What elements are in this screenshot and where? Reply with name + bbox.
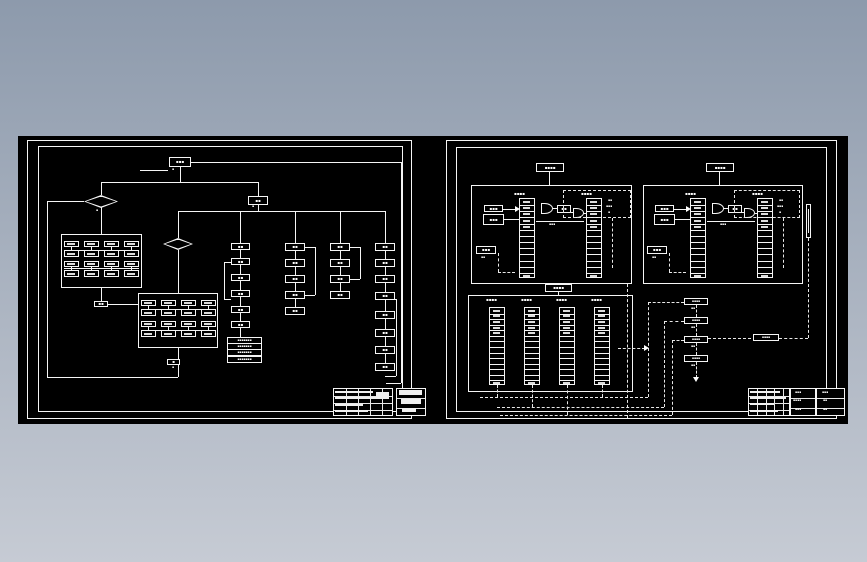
ladder-cell-text bbox=[563, 315, 571, 317]
el-box: ▪▪ bbox=[375, 275, 395, 283]
el-text: ▪▪ bbox=[823, 399, 827, 402]
ladder-cell-text bbox=[563, 382, 571, 384]
ladder-cell-line bbox=[560, 364, 574, 365]
module-pair-part bbox=[164, 323, 172, 325]
el-text: ▪▪ bbox=[779, 199, 783, 202]
ladder-cell-line bbox=[758, 230, 772, 231]
el-pair bbox=[181, 321, 196, 337]
r-register-ladder bbox=[690, 198, 706, 278]
el-text: ▪▪▪▪ bbox=[486, 298, 497, 302]
el-pair bbox=[104, 261, 119, 277]
ladder-cell-text bbox=[493, 382, 501, 384]
el-box: ▪▪▪▪ bbox=[684, 298, 708, 305]
ladder-cell-line bbox=[490, 319, 504, 320]
el-dh bbox=[500, 415, 672, 416]
ladder-cell-line bbox=[490, 364, 504, 365]
el-box: ▪▪ bbox=[285, 259, 305, 267]
ladder-cell-text bbox=[598, 327, 606, 329]
el-hl bbox=[553, 208, 557, 209]
el-pair bbox=[124, 261, 139, 277]
ladder-cell-line bbox=[525, 330, 539, 331]
l-step-box: ▪▪ bbox=[248, 196, 268, 205]
el-box: ▪▪ bbox=[231, 306, 250, 313]
ladder-cell-line bbox=[691, 224, 705, 225]
ladder-cell-line bbox=[595, 380, 609, 381]
module-pair-part bbox=[67, 253, 75, 255]
l-decision-diamond-2 bbox=[163, 238, 193, 250]
ladder-cell-line bbox=[595, 341, 609, 342]
el-text: ▪ bbox=[779, 211, 781, 214]
ladder-cell-text bbox=[493, 310, 501, 312]
el-dv bbox=[696, 362, 697, 378]
ladder-cell-line bbox=[587, 267, 601, 268]
r-register-ladder bbox=[519, 198, 535, 278]
el-text: ▪▪▪▪ bbox=[556, 298, 567, 302]
el-blob bbox=[335, 397, 378, 399]
ladder-cell-line bbox=[520, 273, 534, 274]
module-pair-part bbox=[204, 302, 212, 304]
el-box: ▪▪▪▪ bbox=[753, 334, 779, 341]
el-blob bbox=[335, 391, 373, 393]
ladder-cell-line bbox=[490, 358, 504, 359]
el-box: ▪▪▪ bbox=[483, 214, 504, 225]
ladder-cell-text bbox=[563, 310, 571, 312]
el-dv bbox=[627, 284, 628, 418]
ladder-cell-line bbox=[520, 242, 534, 243]
ladder-cell-line bbox=[560, 330, 574, 331]
el-text: ▪▪▪ bbox=[720, 223, 726, 226]
ladder-cell-line bbox=[525, 347, 539, 348]
ladder-cell-line bbox=[560, 369, 574, 370]
el-dh bbox=[672, 340, 684, 341]
el-hl bbox=[385, 376, 396, 377]
el-dh bbox=[708, 338, 751, 339]
ladder-cell-line bbox=[587, 273, 601, 274]
module-pair-part bbox=[67, 243, 75, 245]
ladder-cell-text bbox=[761, 220, 769, 222]
ladder-cell-line bbox=[587, 261, 601, 262]
el-pair bbox=[124, 241, 139, 257]
module-pair-part bbox=[107, 263, 115, 265]
module-pair-part bbox=[107, 273, 115, 275]
el-dv bbox=[664, 321, 665, 407]
ladder-cell-text bbox=[590, 220, 598, 222]
r-titleblock-right bbox=[816, 388, 845, 416]
el-text: ▪▪ bbox=[691, 364, 695, 367]
titleblock-grid-line bbox=[817, 398, 844, 399]
ladder-cell-line bbox=[587, 242, 601, 243]
l-start-box: ▪▪▪ bbox=[169, 157, 191, 167]
el-box: ▪▪ bbox=[330, 259, 350, 267]
r-titleblock-mid bbox=[790, 388, 816, 416]
el-vl bbox=[178, 365, 179, 377]
el-blob bbox=[402, 408, 416, 412]
ladder-cell-line bbox=[525, 380, 539, 381]
el-blob bbox=[750, 391, 780, 393]
module-pair-part bbox=[87, 263, 95, 265]
el-pair bbox=[161, 300, 176, 316]
ladder-cell-text bbox=[598, 321, 606, 323]
ladder-cell-line bbox=[595, 319, 609, 320]
ladder-cell-text bbox=[493, 332, 501, 334]
el-blob bbox=[750, 410, 778, 412]
el-dv bbox=[696, 343, 697, 355]
ladder-cell-line bbox=[758, 224, 772, 225]
ladder-cell-text bbox=[523, 226, 531, 228]
el-hl bbox=[350, 247, 360, 248]
el-dv bbox=[808, 238, 809, 338]
ladder-cell-line bbox=[520, 248, 534, 249]
el-arr bbox=[644, 345, 649, 351]
el-box: ▪▪▪▪ bbox=[684, 336, 708, 343]
module-pair-part bbox=[87, 253, 95, 255]
el-text: ▪▪▪▪ bbox=[514, 192, 525, 196]
el-hl bbox=[178, 211, 385, 212]
module-pair-part bbox=[127, 243, 135, 245]
el-text: ▪▪▪ bbox=[549, 223, 555, 226]
el-text: ▪▪▪▪ bbox=[685, 192, 696, 196]
ladder-cell-line bbox=[520, 211, 534, 212]
el-dv bbox=[497, 385, 498, 397]
ladder-cell-text bbox=[563, 332, 571, 334]
el-text: ▪▪▪ bbox=[777, 205, 783, 208]
module-pair-part bbox=[164, 333, 172, 335]
ladder-cell-text bbox=[598, 332, 606, 334]
ladder-cell-line bbox=[587, 236, 601, 237]
ladder-cell-line bbox=[560, 325, 574, 326]
module-pair-part bbox=[107, 243, 115, 245]
ladder-cell-text bbox=[523, 275, 531, 277]
el-hl bbox=[108, 304, 138, 305]
l-notes-row: ▪▪▪▪▪▪▪ bbox=[227, 356, 262, 363]
ladder-cell-text bbox=[598, 382, 606, 384]
el-pair bbox=[84, 261, 99, 277]
ladder-cell-line bbox=[490, 353, 504, 354]
el-box: ▪▪ bbox=[285, 291, 305, 299]
module-pair-part bbox=[184, 333, 192, 335]
el-hl bbox=[386, 383, 401, 384]
module-pair-part bbox=[204, 312, 212, 314]
el-dv bbox=[783, 218, 784, 268]
el-box: ▪▪ bbox=[231, 243, 250, 250]
ladder-cell-line bbox=[525, 336, 539, 337]
ladder-cell-line bbox=[691, 261, 705, 262]
el-blob bbox=[750, 397, 786, 399]
ladder-cell-line bbox=[691, 248, 705, 249]
el-vl bbox=[101, 207, 102, 234]
diamond-fill bbox=[86, 197, 116, 207]
ladder-cell-line bbox=[758, 273, 772, 274]
el-box: ▪▪ bbox=[375, 311, 395, 319]
el-text: ▪▪ bbox=[608, 199, 612, 202]
ladder-cell-text bbox=[694, 213, 702, 215]
el-dv bbox=[498, 253, 499, 272]
ladder-cell-line bbox=[691, 205, 705, 206]
el-hl bbox=[674, 209, 686, 210]
el-dv bbox=[669, 253, 670, 272]
el-vl bbox=[315, 247, 316, 295]
module-pair-part bbox=[184, 312, 192, 314]
ladder-cell-text bbox=[528, 327, 536, 329]
ladder-cell-line bbox=[525, 319, 539, 320]
ladder-cell-line bbox=[595, 347, 609, 348]
el-arr bbox=[515, 206, 520, 212]
el-dh bbox=[618, 348, 645, 349]
ladder-cell-line bbox=[525, 364, 539, 365]
ladder-cell-line bbox=[758, 261, 772, 262]
ladder-cell-line bbox=[758, 236, 772, 237]
el-vl bbox=[258, 182, 259, 196]
el-pair bbox=[161, 321, 176, 337]
el-dh bbox=[664, 321, 684, 322]
ladder-cell-line bbox=[520, 236, 534, 237]
el-hl bbox=[724, 208, 728, 209]
ladder-cell-line bbox=[560, 336, 574, 337]
ladder-cell-text bbox=[523, 201, 531, 203]
module-pair-part bbox=[144, 333, 152, 335]
el-vl bbox=[47, 201, 48, 377]
el-vl bbox=[178, 348, 179, 359]
ladder-cell-line bbox=[490, 375, 504, 376]
el-blob bbox=[808, 209, 809, 233]
ladder-cell-line bbox=[490, 336, 504, 337]
el-text: ▪▪▪ bbox=[822, 391, 828, 394]
ladder-cell-line bbox=[587, 230, 601, 231]
el-text: ▪▪ bbox=[691, 307, 695, 310]
module-pair-part bbox=[144, 312, 152, 314]
el-box: ▪▪ bbox=[231, 321, 250, 328]
el-box: ▪▪▪ bbox=[476, 246, 496, 254]
el-pair bbox=[64, 261, 79, 277]
ladder-cell-line bbox=[520, 217, 534, 218]
ladder-cell-line bbox=[691, 254, 705, 255]
r-sub-label: ▪▪▪▪ bbox=[706, 163, 734, 172]
el-box: ▪▪▪ bbox=[484, 205, 503, 212]
ladder-cell-text bbox=[528, 321, 536, 323]
el-hl bbox=[47, 201, 84, 202]
el-box: ▪▪ bbox=[375, 292, 395, 300]
el-text: ▪ bbox=[172, 168, 174, 171]
el-text: ▪▪▪▪ bbox=[793, 399, 801, 402]
ladder-cell-line bbox=[691, 217, 705, 218]
module-pair-part bbox=[67, 273, 75, 275]
el-pair bbox=[84, 241, 99, 257]
ladder-cell-line bbox=[595, 358, 609, 359]
ladder-cell-line bbox=[595, 336, 609, 337]
el-vl bbox=[224, 262, 225, 299]
ladder-cell-line bbox=[490, 369, 504, 370]
ladder-cell-line bbox=[560, 319, 574, 320]
module-pair-part bbox=[184, 302, 192, 304]
ladder-cell-line bbox=[595, 353, 609, 354]
el-box: ▪▪ bbox=[375, 346, 395, 354]
el-hl bbox=[101, 182, 258, 183]
r-main-label: ▪▪▪▪ bbox=[536, 163, 564, 172]
el-text: ▪▪▪ bbox=[795, 391, 801, 394]
el-text: ▪ bbox=[252, 205, 254, 208]
el-pair bbox=[141, 321, 156, 337]
el-blob bbox=[401, 399, 421, 404]
el-text: ▪▪ bbox=[823, 408, 827, 411]
ladder-cell-line bbox=[525, 369, 539, 370]
el-vl bbox=[396, 299, 397, 376]
ladder-cell-line bbox=[691, 242, 705, 243]
el-dv bbox=[696, 305, 697, 317]
el-hl bbox=[350, 279, 360, 280]
ladder-cell-line bbox=[587, 254, 601, 255]
el-vl bbox=[101, 288, 102, 301]
el-dv bbox=[532, 385, 533, 407]
ladder-cell-text bbox=[590, 275, 598, 277]
ladder-cell-line bbox=[490, 325, 504, 326]
el-dv bbox=[672, 340, 673, 415]
module-pair-part bbox=[127, 263, 135, 265]
ladder-cell-line bbox=[587, 224, 601, 225]
diamond-fill bbox=[165, 240, 191, 249]
ladder-cell-line bbox=[520, 224, 534, 225]
el-vl bbox=[549, 172, 550, 185]
ladder-cell-text bbox=[761, 275, 769, 277]
el-vl bbox=[340, 211, 341, 299]
ladder-cell-line bbox=[490, 347, 504, 348]
el-text: ▪▪▪ bbox=[606, 205, 612, 208]
el-vl bbox=[178, 211, 179, 238]
ladder-cell-line bbox=[520, 261, 534, 262]
el-hl bbox=[536, 221, 584, 222]
el-drect bbox=[734, 190, 800, 218]
ladder-cell-line bbox=[691, 211, 705, 212]
module-pair-part bbox=[127, 253, 135, 255]
ladder-cell-line bbox=[560, 375, 574, 376]
el-box: ▪▪ bbox=[285, 243, 305, 251]
ladder-cell-line bbox=[595, 364, 609, 365]
el-dh bbox=[498, 272, 515, 273]
ladder-cell-line bbox=[520, 205, 534, 206]
el-hl bbox=[140, 170, 168, 171]
ladder-cell-text bbox=[493, 321, 501, 323]
el-dh bbox=[779, 338, 808, 339]
ladder-cell-text bbox=[528, 332, 536, 334]
el-box: ▪▪ bbox=[330, 275, 350, 283]
el-box: ▪▪ bbox=[285, 275, 305, 283]
el-vl bbox=[101, 182, 102, 195]
el-text: ▪▪▪▪ bbox=[521, 298, 532, 302]
el-box: ▪▪ bbox=[375, 259, 395, 267]
el-box: ▪▪ bbox=[231, 274, 250, 281]
el-box: ▪▪ bbox=[285, 307, 305, 315]
ladder-cell-line bbox=[560, 341, 574, 342]
ladder-cell-line bbox=[758, 242, 772, 243]
module-pair-part bbox=[204, 333, 212, 335]
module-pair-part bbox=[87, 243, 95, 245]
titleblock-grid-line bbox=[817, 408, 844, 409]
el-dv bbox=[602, 385, 603, 397]
el-dh bbox=[669, 272, 686, 273]
ladder-cell-line bbox=[560, 380, 574, 381]
module-pair-part bbox=[164, 312, 172, 314]
r-table-ladder bbox=[594, 307, 610, 385]
ladder-cell-text bbox=[761, 226, 769, 228]
r-table-ladder bbox=[559, 307, 575, 385]
el-hl bbox=[224, 299, 231, 300]
ladder-cell-line bbox=[525, 358, 539, 359]
ladder-cell-text bbox=[694, 275, 702, 277]
el-vl bbox=[180, 167, 181, 182]
el-box: ▪▪ bbox=[330, 243, 350, 251]
el-dh bbox=[497, 407, 664, 408]
ladder-cell-text bbox=[694, 220, 702, 222]
ladder-cell-line bbox=[691, 273, 705, 274]
el-text: ▪▪ bbox=[691, 326, 695, 329]
module-pair-part bbox=[144, 323, 152, 325]
el-dv bbox=[612, 218, 613, 268]
ladder-cell-line bbox=[758, 267, 772, 268]
ladder-cell-line bbox=[758, 248, 772, 249]
el-dh bbox=[648, 302, 684, 303]
el-hl bbox=[503, 209, 515, 210]
el-hl bbox=[675, 219, 690, 220]
ladder-cell-line bbox=[595, 369, 609, 370]
ladder-cell-text bbox=[493, 327, 501, 329]
cad-preview-image: ▪▪▪▪▪▪▪▪▪▪▪▪▪▪▪▪▪▪▪▪▪▪▪▪▪▪▪▪▪▪▪▪▪▪▪▪▪▪▪▪… bbox=[0, 0, 867, 562]
ladder-cell-text bbox=[528, 315, 536, 317]
module-pair-part bbox=[164, 302, 172, 304]
ladder-cell-text bbox=[694, 226, 702, 228]
module-pair-part bbox=[204, 323, 212, 325]
el-pair bbox=[181, 300, 196, 316]
el-pair bbox=[104, 241, 119, 257]
el-hl bbox=[305, 295, 315, 296]
ladder-cell-line bbox=[520, 267, 534, 268]
el-pair bbox=[64, 241, 79, 257]
el-box: ▪▪▪▪ bbox=[684, 355, 708, 362]
el-text: ▪ bbox=[96, 209, 98, 212]
el-hl bbox=[224, 262, 231, 263]
el-dh bbox=[480, 397, 648, 398]
ladder-cell-text bbox=[598, 310, 606, 312]
el-box: ▪▪▪▪ bbox=[684, 317, 708, 324]
ladder-cell-line bbox=[560, 347, 574, 348]
el-blob bbox=[335, 410, 368, 412]
ladder-cell-text bbox=[523, 207, 531, 209]
module-pair-part bbox=[107, 253, 115, 255]
ladder-cell-text bbox=[598, 315, 606, 317]
l-decision-diamond-1 bbox=[84, 195, 118, 208]
ladder-cell-text bbox=[493, 315, 501, 317]
el-box: ▪▪ bbox=[231, 290, 250, 297]
drawings-layer: ▪▪▪▪▪▪▪▪▪▪▪▪▪▪▪▪▪▪▪▪▪▪▪▪▪▪▪▪▪▪▪▪▪▪▪▪▪▪▪▪… bbox=[0, 0, 867, 562]
el-vl bbox=[558, 292, 559, 295]
el-dv bbox=[696, 324, 697, 336]
el-text: ▪▪▪▪ bbox=[591, 298, 602, 302]
module-pair-part bbox=[184, 323, 192, 325]
ladder-cell-line bbox=[595, 375, 609, 376]
el-drect bbox=[563, 190, 631, 218]
el-hl bbox=[504, 219, 519, 220]
el-pair bbox=[201, 300, 216, 316]
el-hl bbox=[305, 247, 315, 248]
ladder-cell-line bbox=[758, 254, 772, 255]
el-box: ▪▪ bbox=[375, 363, 395, 371]
ladder-cell-line bbox=[587, 248, 601, 249]
el-box: ▪▪ bbox=[375, 329, 395, 337]
el-hl bbox=[47, 377, 178, 378]
el-text: ▪ bbox=[608, 211, 610, 214]
ladder-cell-line bbox=[525, 325, 539, 326]
ladder-cell-line bbox=[525, 353, 539, 354]
ladder-cell-line bbox=[560, 353, 574, 354]
el-box: ▪▪▪ bbox=[654, 214, 675, 225]
